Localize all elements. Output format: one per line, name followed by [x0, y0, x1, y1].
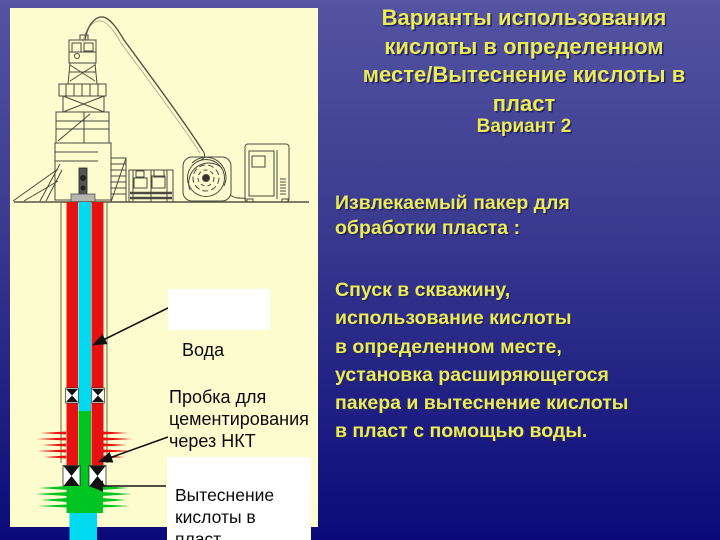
- water-label-box: Вода: [168, 289, 270, 330]
- wellhead-stack: [71, 168, 95, 202]
- acid-annulus-right: [92, 202, 104, 466]
- water-column: [79, 202, 92, 411]
- slide: Вода Пробка для цементирования через НКТ…: [0, 0, 720, 540]
- well-diagram: [0, 0, 720, 540]
- wellbore: [35, 202, 133, 540]
- equipment-skid: [129, 170, 173, 202]
- control-cabin: [245, 144, 289, 202]
- green-fracture-lines: [35, 486, 132, 513]
- coiled-tubing-reel: [183, 151, 246, 201]
- plug-label: Пробка для цементирования через НКТ: [169, 386, 341, 452]
- plug-arrow: [101, 437, 168, 461]
- water-label: Вода: [182, 340, 224, 360]
- rig-derrick: [13, 35, 126, 202]
- displacement-label: Вытеснение кислоты в пласт: [175, 485, 274, 540]
- displacement-label-box: Вытеснение кислоты в пласт: [167, 457, 311, 540]
- rig-hose: [83, 17, 203, 153]
- water-column-bottom: [70, 513, 98, 540]
- acid-annulus-left: [67, 202, 79, 466]
